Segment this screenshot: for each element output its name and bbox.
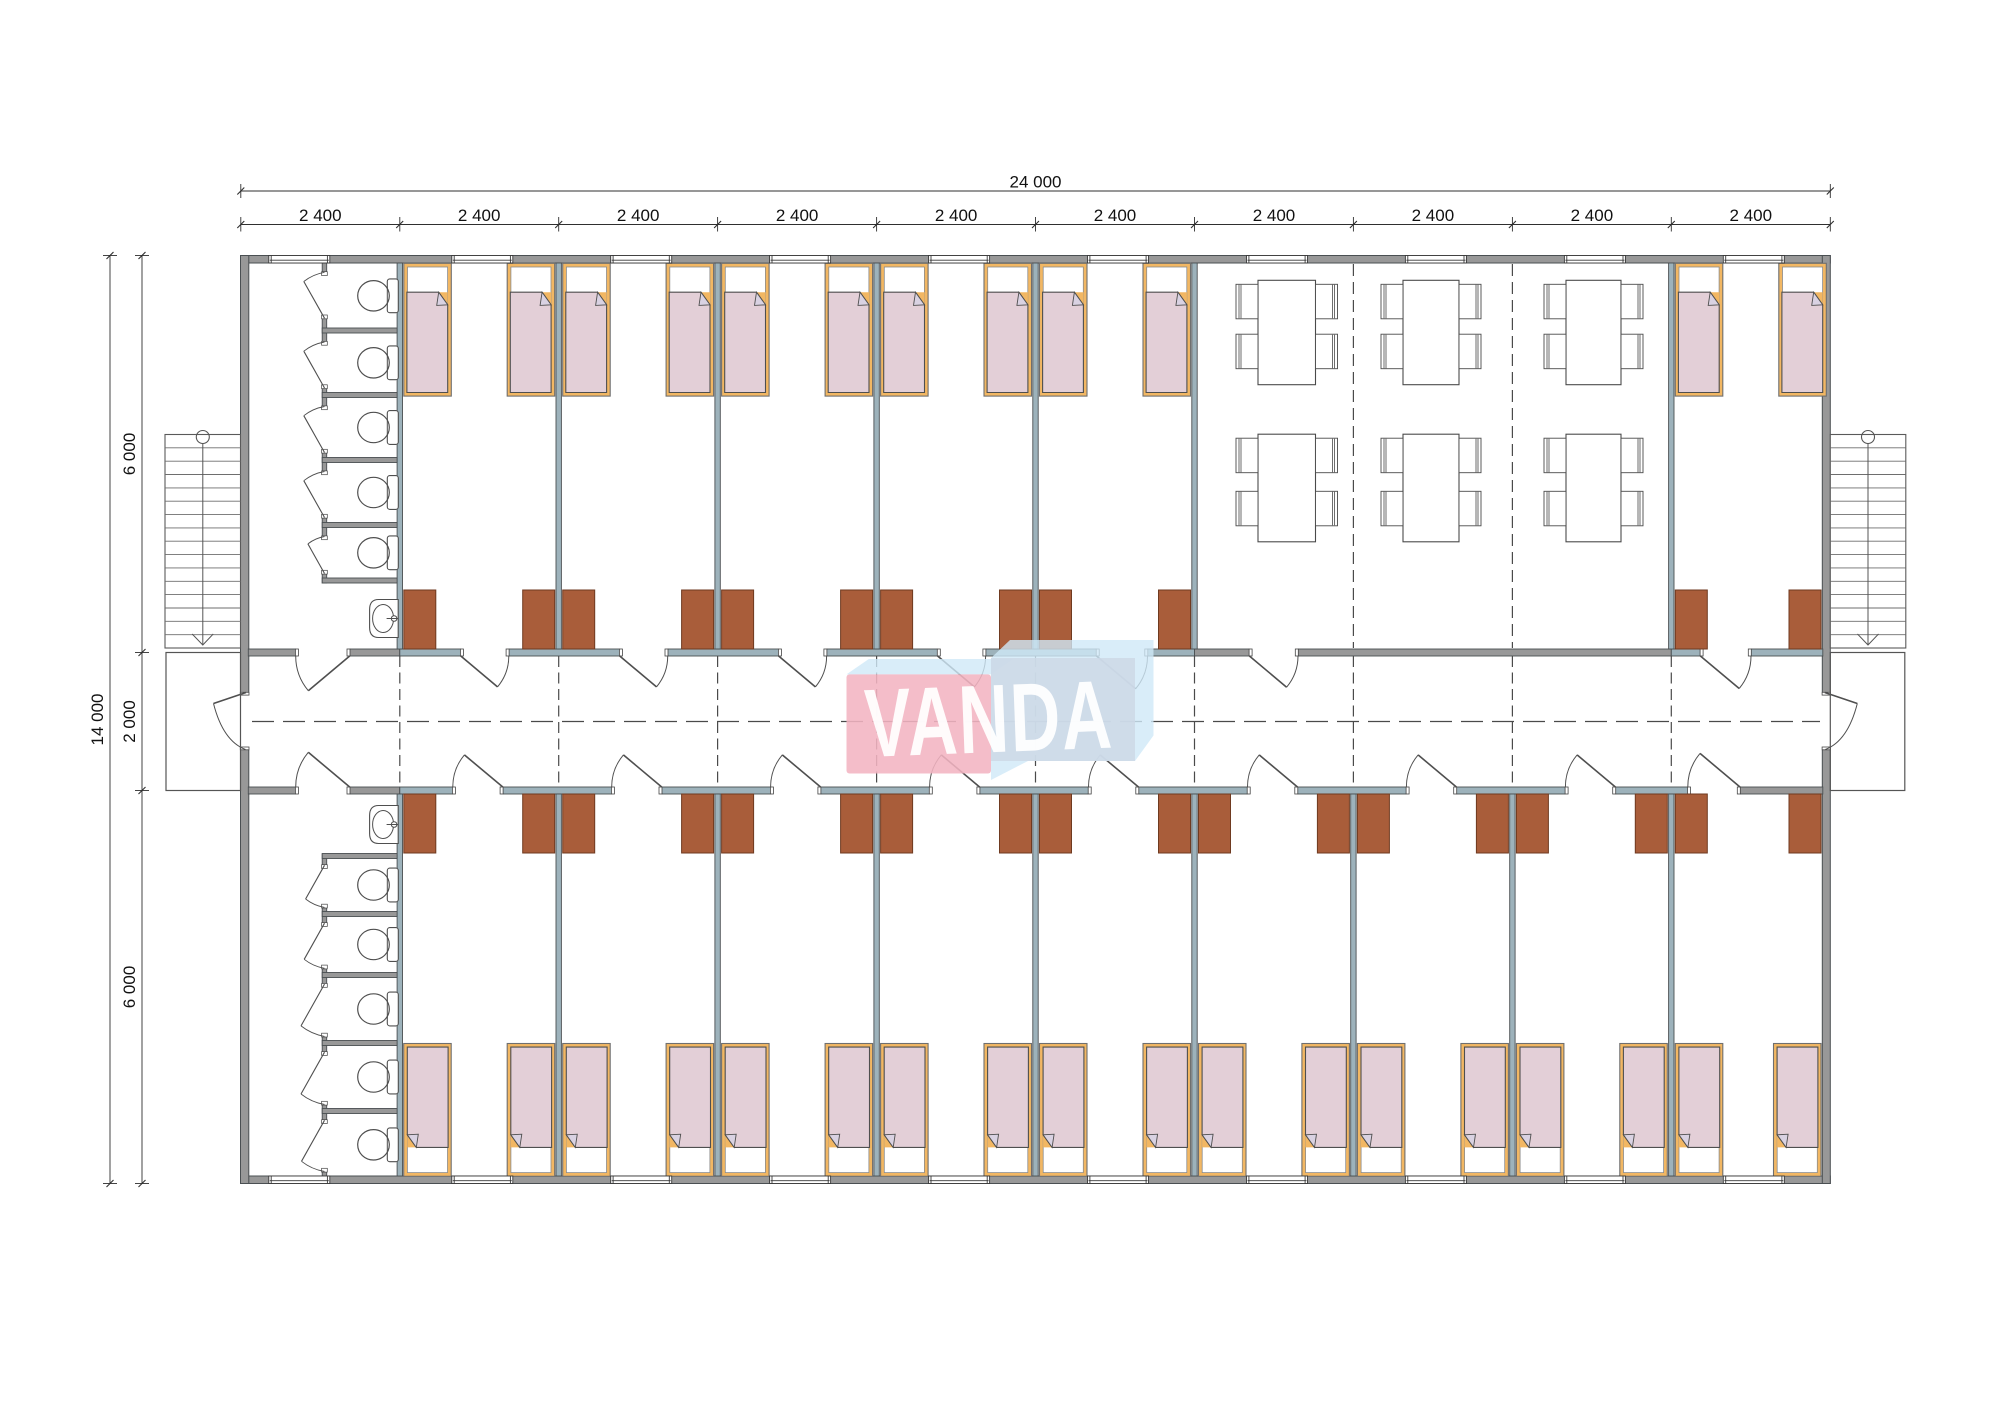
svg-text:2 400: 2 400: [935, 206, 978, 225]
svg-text:6 000: 6 000: [120, 966, 139, 1009]
svg-text:2 400: 2 400: [458, 206, 501, 225]
svg-text:2 400: 2 400: [776, 206, 819, 225]
svg-text:24 000: 24 000: [1010, 173, 1062, 192]
svg-text:2 000: 2 000: [120, 700, 139, 743]
svg-text:14 000: 14 000: [88, 694, 107, 746]
svg-text:2 400: 2 400: [617, 206, 660, 225]
svg-text:2 400: 2 400: [299, 206, 342, 225]
svg-text:2 400: 2 400: [1571, 206, 1614, 225]
svg-text:6 000: 6 000: [120, 433, 139, 476]
svg-text:2 400: 2 400: [1253, 206, 1296, 225]
svg-text:VANDA: VANDA: [863, 659, 1115, 777]
svg-text:2 400: 2 400: [1094, 206, 1137, 225]
svg-text:2 400: 2 400: [1412, 206, 1455, 225]
svg-text:2 400: 2 400: [1730, 206, 1773, 225]
